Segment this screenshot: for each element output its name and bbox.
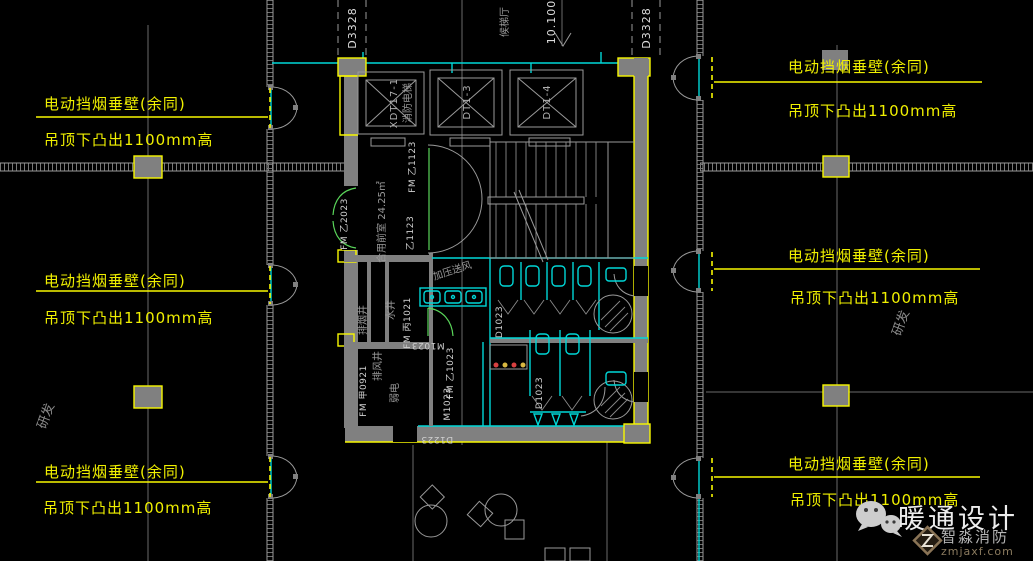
chair: [467, 501, 492, 526]
wc-fixture: [566, 334, 579, 354]
faucet-dot: [512, 363, 517, 368]
callout-text-line1: 电动挡烟垂壁(余同): [44, 463, 186, 481]
watermark-url: zmjaxf.com: [941, 545, 1014, 558]
structural-columns: [134, 50, 849, 408]
callout-text-line2: 吊顶下凸出1100mm高: [44, 309, 213, 327]
door-label-m1023-a: M1023: [411, 340, 444, 350]
callout-right-2: 电动挡烟垂壁(余同) 吊顶下凸出1100mm高: [712, 247, 980, 307]
callout-text-line1: 电动挡烟垂壁(余同): [44, 95, 186, 113]
fire-elevator-name: 消防电梯: [401, 83, 414, 123]
room-label-front-room: 合用前室 24.25㎡: [375, 181, 388, 263]
callout-text-line2: 吊顶下凸出1100mm高: [788, 102, 957, 120]
column: [134, 156, 162, 178]
door-label-fm2023: FM 乙2023: [339, 198, 350, 250]
wc-fixture: [500, 266, 513, 286]
callout-text-line1: 电动挡烟垂壁(余同): [788, 58, 930, 76]
callout-left-3: 电动挡烟垂壁(余同) 吊顶下凸出1100mm高: [36, 457, 270, 517]
column: [134, 386, 162, 408]
table: [415, 505, 447, 537]
left-corridor-wall: [263, 0, 298, 561]
urinal: [534, 414, 542, 425]
room-label-rd-left: 研发: [34, 401, 58, 431]
stair-break-line: [514, 192, 543, 262]
door-label-1123: 乙1123: [405, 216, 416, 250]
faucet-dot: [494, 363, 499, 368]
callout-left-1: 电动挡烟垂壁(余同) 吊顶下凸出1100mm高: [36, 88, 270, 149]
callout-left-2: 电动挡烟垂壁(余同) 吊顶下凸出1100mm高: [36, 266, 270, 327]
axis-label-left: D3328: [346, 7, 359, 48]
right-corridor-wall: [671, 0, 707, 561]
elevator-label-dt1-4: DT1-4: [542, 84, 553, 119]
door-label-fm0921: FM 甲0921: [358, 365, 369, 417]
chair: [570, 548, 590, 561]
label-pressurized-supply: 加压送风: [431, 258, 473, 283]
callout-text-line2: 吊顶下凸出1100mm高: [44, 131, 213, 149]
wc-fixture: [536, 334, 549, 354]
elevator-label-dt1-3: DT1-3: [462, 84, 473, 119]
shaft-label-smoke-exhaust: 排烟井: [356, 305, 369, 335]
column: [823, 156, 849, 177]
wc-fixture: [526, 266, 539, 286]
room-label-elv: 弱电: [388, 383, 401, 403]
stair: [488, 142, 634, 262]
door-label-d1023-b: D1023: [535, 377, 545, 409]
watermark-brand: 智淼消防: [941, 528, 1009, 546]
shaft-label-water: 水井: [384, 300, 397, 320]
level-label: 10.100: [545, 0, 558, 44]
callout-text-line2: 吊顶下凸出1100mm高: [790, 289, 959, 307]
door-label-fm1123: FM 乙1123: [407, 141, 418, 193]
chair: [505, 520, 524, 539]
faucet-dot: [521, 363, 526, 368]
callout-text-line1: 电动挡烟垂壁(余同): [44, 272, 186, 290]
callout-text-line1: 电动挡烟垂壁(余同): [788, 247, 930, 265]
door-label-m1023-b: M1023: [443, 387, 453, 420]
callout-text-line1: 电动挡烟垂壁(余同): [788, 455, 930, 473]
faucet-dot: [503, 363, 508, 368]
room-label-rd-right: 研发: [889, 308, 913, 338]
door-label-fm1021: FM 丙1021: [402, 297, 413, 349]
cad-drawing: D3328 D3328 候梯厅 10.100 研发 研发 XDT17-1 消防电…: [0, 0, 1033, 561]
column: [823, 385, 849, 406]
callout-text-line2: 吊顶下凸出1100mm高: [43, 499, 212, 517]
fire-elevator-id: XDT17-1: [389, 78, 400, 128]
stair-treads: [496, 142, 596, 258]
chair: [545, 548, 565, 561]
axis-label-right: D3328: [640, 7, 653, 48]
wc-fixture: [552, 266, 565, 286]
callout-right-1: 电动挡烟垂壁(余同) 吊顶下凸出1100mm高: [712, 57, 982, 120]
callout-right-3: 电动挡烟垂壁(余同) 吊顶下凸出1100mm高: [712, 455, 980, 509]
urinal: [552, 414, 560, 425]
door-label-d1223: D1223: [421, 434, 453, 444]
room-label-elevator-lobby: 候梯厅: [498, 7, 511, 37]
cad-floor-plan-screenshot: D3328 D3328 候梯厅 10.100 研发 研发 XDT17-1 消防电…: [0, 0, 1033, 561]
stair-handrail: [488, 197, 584, 204]
core-walls: [272, 52, 650, 443]
wc-fixture: [606, 372, 626, 385]
furniture: [415, 485, 590, 561]
toilet-room-2: [490, 330, 632, 425]
table: [485, 494, 517, 526]
wc-fixture: [578, 266, 591, 286]
watermark: 暖通设计 智淼消防 zmjaxf.com: [856, 501, 1018, 558]
wc-fixture: [606, 268, 626, 281]
drawing-labels: D3328 D3328 候梯厅 10.100 研发 研发 XDT17-1 消防电…: [34, 0, 913, 444]
door-label-d1023-a: D1023: [495, 306, 505, 338]
shaft-label-exhaust: 排风井: [371, 351, 384, 381]
urinal: [570, 414, 578, 425]
front-room-door-swing: [428, 145, 482, 253]
